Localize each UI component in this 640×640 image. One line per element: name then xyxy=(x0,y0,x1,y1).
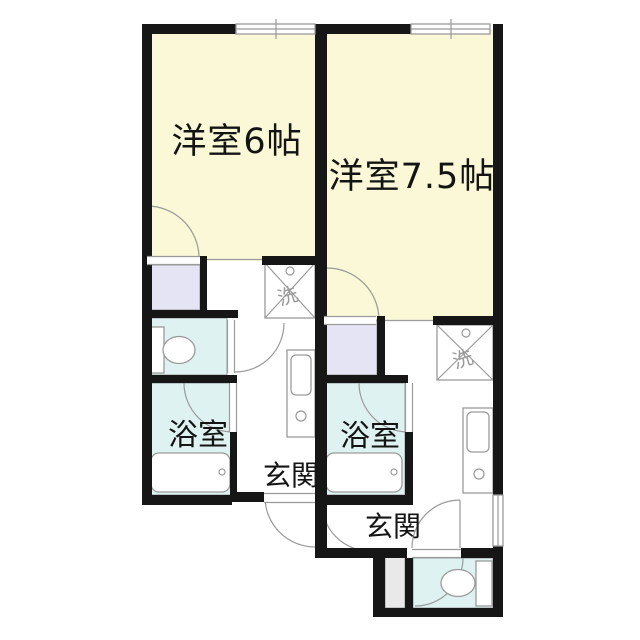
unit-b-room-label: 洋室7.5帖 xyxy=(329,157,496,197)
unit-b-toilet-bowl xyxy=(441,570,475,597)
unit-b-room-door-opening xyxy=(324,316,376,325)
unit-a-bathtub xyxy=(151,453,230,492)
unit-a-bath-label: 浴室 xyxy=(168,418,228,453)
unit-b-entrance-step xyxy=(385,552,405,608)
unit-a-kitchen-sink xyxy=(291,355,311,395)
unit-a-closet xyxy=(150,265,200,310)
unit-b-kitchen-window xyxy=(493,495,503,546)
unit-a-toilet-bowl xyxy=(163,337,195,364)
unit-b-washer-symbol: 洗 xyxy=(437,325,493,380)
unit-b-entrance-label: 玄関 xyxy=(365,510,421,543)
unit-a-room-door-opening xyxy=(147,256,200,265)
floor-plan: 洗 洗 xyxy=(0,0,640,640)
unit-a-toilet-door-arc xyxy=(235,323,284,372)
unit-a-entrance-door-arc xyxy=(265,497,315,547)
unit-b-closet xyxy=(324,320,377,375)
unit-b-hall-door-arc xyxy=(322,503,370,551)
unit-a-bathroom-door-opening xyxy=(229,383,237,432)
unit-b-kitchen-sink xyxy=(467,412,489,452)
unit-a-washer-symbol: 洗 xyxy=(265,263,315,318)
unit-a-entrance-door-opening xyxy=(264,493,315,503)
unit-b-kitchen-counter xyxy=(463,408,493,493)
unit-b-bathroom-door-opening xyxy=(405,383,413,432)
unit-a-kitchen-counter xyxy=(287,350,315,437)
unit-a-toilet-door-opening xyxy=(227,320,235,373)
unit-b-toilet-tank xyxy=(476,561,492,606)
unit-a-room-label: 洋室6帖 xyxy=(171,122,302,162)
unit-a-entrance-label: 玄関 xyxy=(263,459,319,492)
unit-b-bath-label: 浴室 xyxy=(340,419,400,454)
unit-b-entrance-door-opening xyxy=(412,549,461,558)
